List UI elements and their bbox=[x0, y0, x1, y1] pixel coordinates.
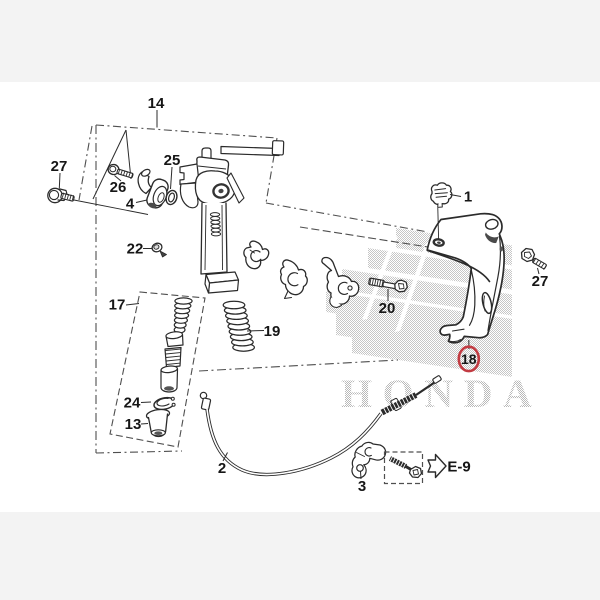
svg-text:25: 25 bbox=[164, 152, 181, 169]
svg-text:4: 4 bbox=[126, 196, 135, 213]
svg-text:1: 1 bbox=[464, 189, 472, 206]
svg-text:17: 17 bbox=[109, 297, 126, 314]
svg-text:13: 13 bbox=[125, 416, 142, 433]
svg-text:26: 26 bbox=[110, 179, 127, 196]
svg-text:22: 22 bbox=[127, 241, 144, 258]
svg-text:27: 27 bbox=[51, 158, 68, 175]
svg-text:24: 24 bbox=[124, 395, 141, 412]
svg-text:14: 14 bbox=[148, 95, 165, 112]
svg-text:20: 20 bbox=[379, 300, 396, 317]
svg-text:HONDA: HONDA bbox=[341, 371, 542, 416]
svg-text:E-9: E-9 bbox=[447, 459, 470, 476]
svg-text:3: 3 bbox=[358, 478, 366, 495]
svg-text:27: 27 bbox=[532, 273, 549, 290]
svg-text:2: 2 bbox=[218, 460, 226, 477]
svg-text:19: 19 bbox=[264, 323, 281, 340]
svg-text:18: 18 bbox=[461, 351, 477, 367]
